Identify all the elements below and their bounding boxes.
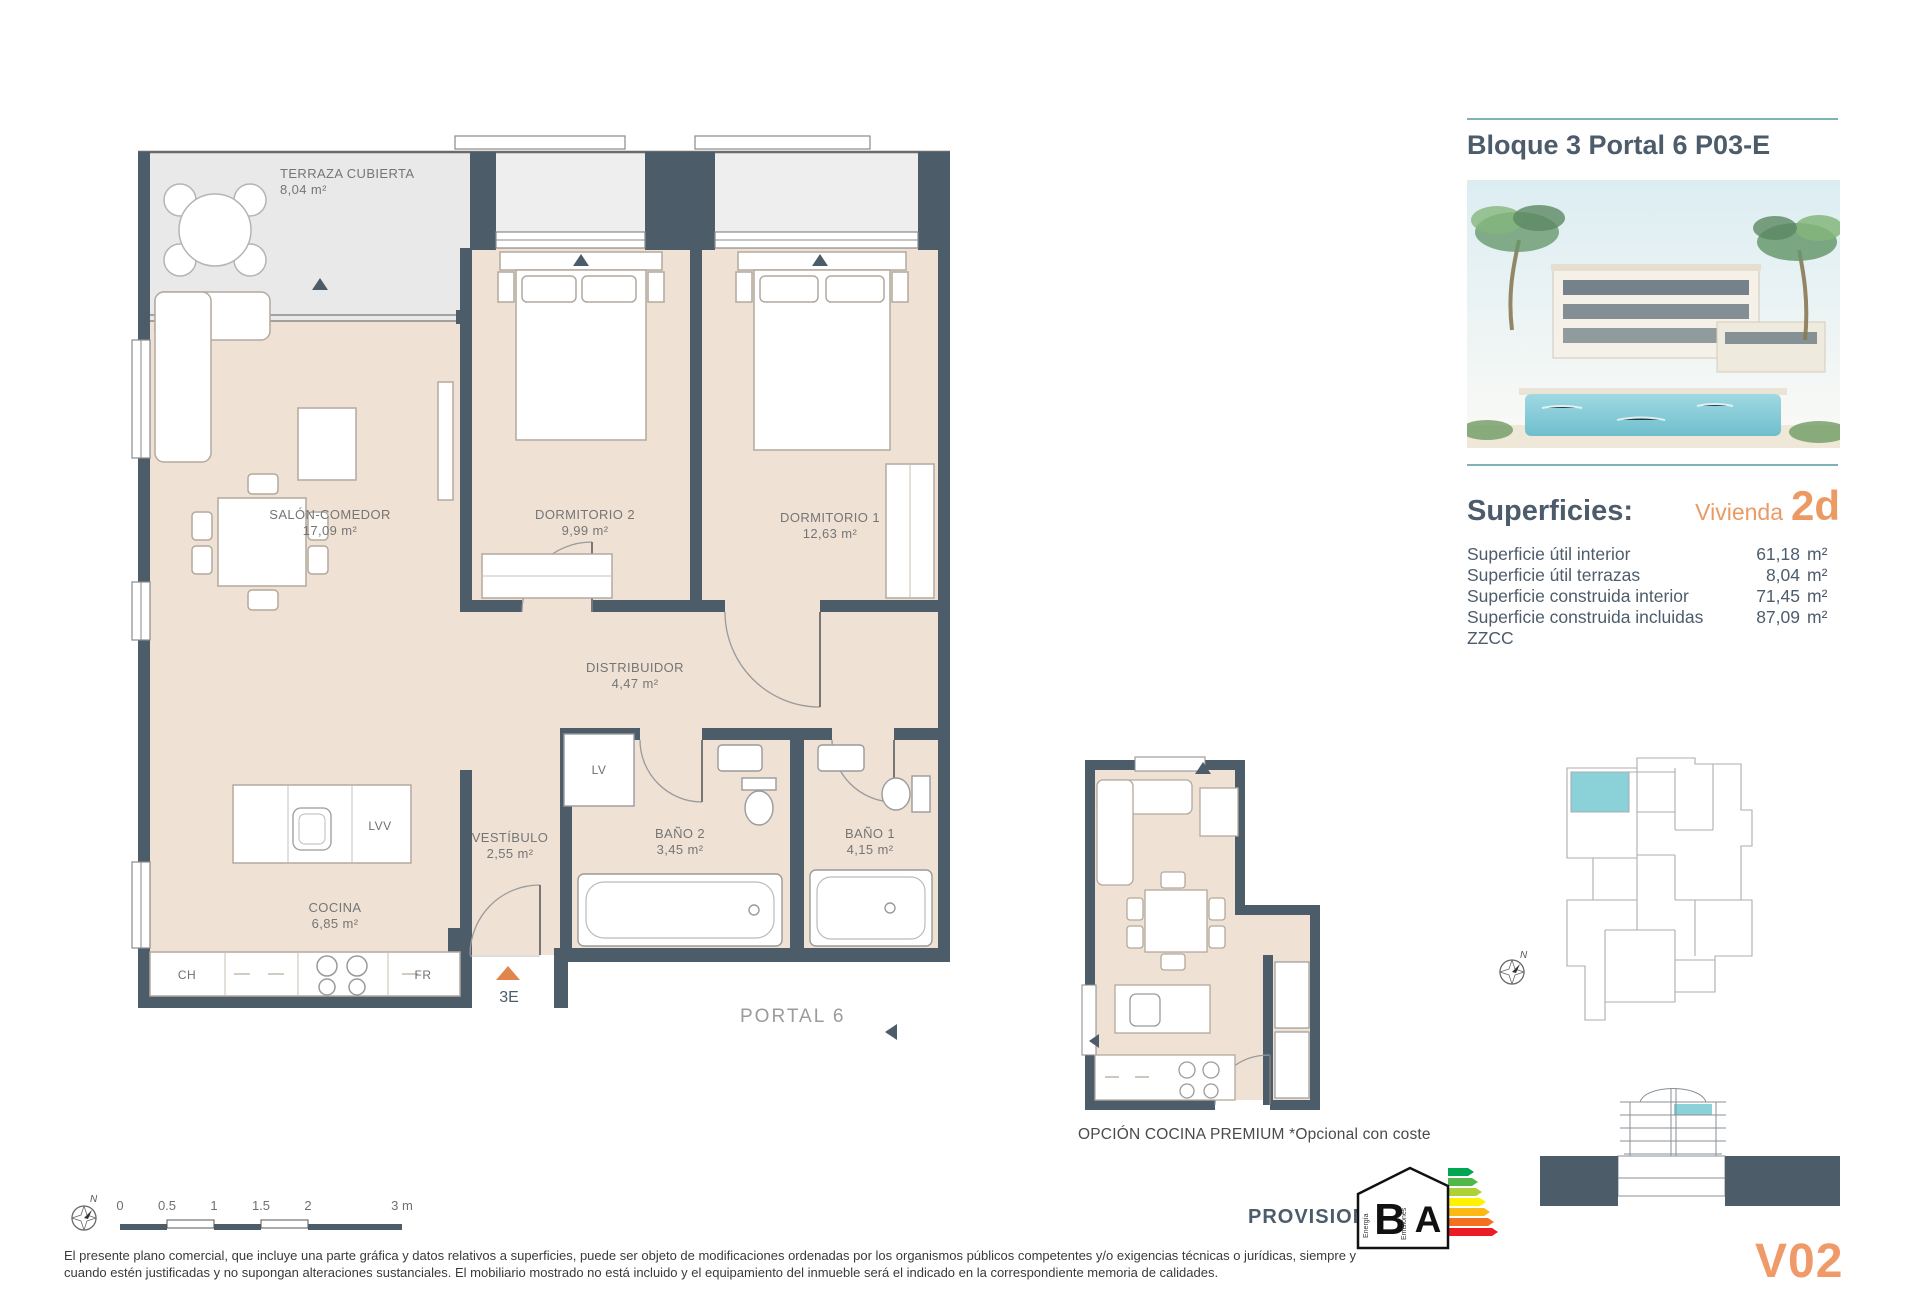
room-area-cocina: 6,85 m² [312,916,359,931]
building-rendering [1467,180,1840,448]
surface-label: Superficie útil interior [1467,544,1736,565]
terrace-table-set [164,184,266,276]
superficies-header: Superficies: Vivienda2d [1467,482,1840,530]
compass-north-letter: N [90,1194,98,1205]
room-label-terraza: TERRAZA CUBIERTA [280,166,415,181]
premium-kitchen-plan [1075,740,1345,1130]
room-area-bano2: 3,45 m² [657,842,704,857]
section-highlighted-unit [1674,1104,1712,1115]
surface-unit: m² [1800,607,1841,649]
surface-label: Superficie construida interior [1467,586,1736,607]
key-plan-compass: N [1492,946,1536,990]
surface-unit: m² [1800,544,1841,565]
entry-marker [496,966,520,980]
portal-label: PORTAL 6 [740,1006,845,1028]
unit-marker-label: 3E [499,989,519,1006]
scale-tick: 0 [116,1198,123,1213]
room-label-bano1: BAÑO 1 [845,826,895,841]
wardrobe-dorm1 [886,464,934,598]
energy-energia-label: Energía [1363,1213,1370,1238]
highlighted-unit [1571,772,1629,812]
fixture-label-lvv: LVV [368,819,391,833]
room-label-dorm2: DORMITORIO 2 [535,507,635,522]
main-floor-plan: TERRAZA CUBIERTA 8,04 m² SALÓN-COMEDOR 1… [130,130,1010,1040]
scale-tick: 0.5 [158,1198,176,1213]
superficies-rule [1467,464,1838,466]
scale-tick: 1.5 [252,1198,270,1213]
room-label-cocina: COCINA [309,900,362,915]
tv-unit [438,382,453,500]
scale-tick: 3 m [391,1198,413,1213]
energy-emisiones-label: Emisiones [1401,1207,1408,1240]
surface-value: 8,04 [1736,565,1800,586]
energy-letter-a: A [1415,1199,1442,1240]
disclaimer-line-1: El presente plano comercial, que incluye… [64,1248,1374,1265]
room-label-salon: SALÓN-COMEDOR [269,507,391,522]
plan-sheet: { "colors": { "wall": "#4d5c69", "floor_… [0,0,1920,1280]
surface-value: 71,45 [1736,586,1800,607]
room-label-dorm1: DORMITORIO 1 [780,510,880,525]
energy-rating-icon: B A Energía Emisiones [1352,1160,1502,1258]
page-title: Bloque 3 Portal 6 P03-E [1467,130,1770,161]
version-label: V02 [1755,1234,1905,1289]
superficies-table: Superficie útil interior 61,18 m² Superf… [1467,544,1841,649]
bed-dorm1 [736,252,908,450]
vivienda-label: Vivienda [1695,499,1783,525]
premium-kitchen-caption: OPCIÓN COCINA PREMIUM *Opcional con cost… [1078,1126,1431,1144]
section-marker-left [885,1024,897,1040]
scale-compass: N [62,1188,108,1238]
bed-dorm2 [498,252,664,440]
vivienda-group: Vivienda2d [1695,482,1840,530]
key-plan [1545,750,1775,1035]
title-rule [1467,118,1838,120]
room-label-vestibulo: VESTÍBULO [472,830,549,845]
coffee-table [298,408,356,480]
room-area-distribuidor: 4,47 m² [612,676,659,691]
surface-value: 61,18 [1736,544,1800,565]
room-area-vestibulo: 2,55 m² [487,846,534,861]
room-label-bano2: BAÑO 2 [655,826,705,841]
scale-tick: 2 [304,1198,311,1213]
surface-label: Superficie útil terrazas [1467,565,1736,586]
scale-bar: 0 0.5 1 1.5 2 3 m [112,1196,442,1246]
fixture-label-ch: CH [178,968,196,982]
kitchen-counter [150,952,460,996]
room-area-dorm1: 12,63 m² [803,526,858,541]
compass-north-letter: N [1520,950,1528,961]
surface-value: 87,09 [1736,607,1800,649]
scale-tick: 1 [210,1198,217,1213]
fixture-label-fr: FR [415,968,432,982]
room-area-bano1: 4,15 m² [847,842,894,857]
table-row: Superficie construida incluidas ZZCC 87,… [1467,607,1841,649]
wardrobe-dorm2 [482,554,612,598]
table-row: Superficie útil interior 61,18 m² [1467,544,1841,565]
energy-bars [1448,1168,1498,1236]
table-row: Superficie útil terrazas 8,04 m² [1467,565,1841,586]
superficies-heading: Superficies: [1467,495,1633,528]
vivienda-code: 2d [1791,482,1840,529]
room-area-terraza: 8,04 m² [280,182,327,197]
table-row: Superficie construida interior 71,45 m² [1467,586,1841,607]
room-area-salon: 17,09 m² [303,523,358,538]
room-area-dorm2: 9,99 m² [562,523,609,538]
surface-label: Superficie construida incluidas ZZCC [1467,607,1736,649]
room-label-distribuidor: DISTRIBUIDOR [586,660,684,675]
surface-unit: m² [1800,565,1841,586]
surface-unit: m² [1800,586,1841,607]
section-diagram [1540,1078,1840,1213]
disclaimer-line-2: cuando estén justificadas y no supongan … [64,1265,1374,1282]
fixture-label-lv: LV [592,763,607,777]
